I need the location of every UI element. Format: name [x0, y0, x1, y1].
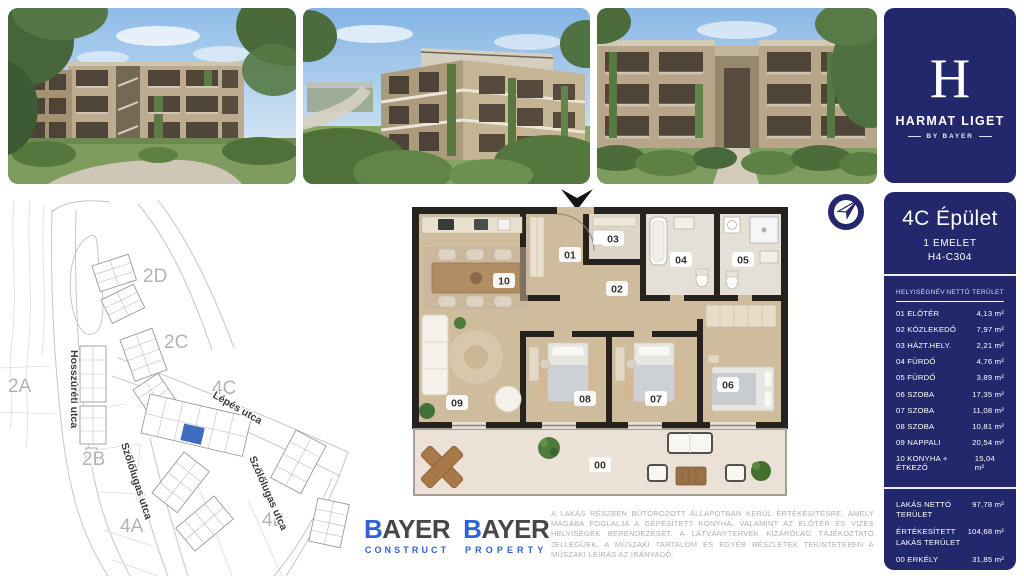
map-building-4a: [152, 452, 233, 551]
map-label-2c: 2C: [164, 332, 188, 353]
table-row: 04 FÜRDŐ4,76 m²: [896, 357, 1004, 366]
render-garden-scene: [8, 8, 296, 184]
site-map: 2D 2C 2A 4C 2B 4A 4B Hosszúréti utca Lép…: [0, 200, 360, 576]
brand-card: H HARMAT LIGET BY BAYER: [884, 8, 1016, 183]
table-row: 02 KÖZLEKEDŐ7,97 m²: [896, 325, 1004, 334]
brand-name: HARMAT LIGET: [895, 114, 1004, 128]
table-row: 07 SZOBA11,08 m²: [896, 406, 1004, 415]
building-render-corner: [303, 8, 590, 184]
total-row: ÉRTÉKESÍTETT LAKÁS TERÜLET104,68 m²: [896, 527, 1004, 548]
render-front-scene: [597, 8, 877, 184]
building-title: 4C Épület: [888, 207, 1012, 231]
room-label-08: 08: [579, 394, 591, 406]
room-label-00: 00: [594, 460, 606, 472]
map-street-szololugas-1: Szőlőlugas utca: [118, 441, 154, 521]
table-row: 01 ELŐTÉR4,13 m²: [896, 309, 1004, 318]
room-label-01: 01: [564, 250, 576, 262]
totals-section: LAKÁS NETTÓ TERÜLET97,78 m² ÉRTÉKESÍTETT…: [884, 500, 1016, 565]
total-row: 00 ERKÉLY31,85 m²: [896, 555, 1004, 565]
unit-code: H4-C304: [888, 252, 1012, 263]
separator: [884, 487, 1016, 489]
map-label-2a: 2A: [8, 376, 32, 397]
render-corner-scene: [303, 8, 590, 184]
map-label-2b: 2B: [82, 449, 105, 470]
unit-info-card: 4C Épület 1 EMELET H4-C304 HELYISÉGNÉV N…: [884, 192, 1016, 570]
byline-dash-right: [979, 136, 992, 137]
byline-dash-left: [908, 136, 921, 137]
footer-logos: BAYER CONSTRUCT BAYER PROPERTY: [364, 516, 549, 555]
table-row: 08 SZOBA10,81 m²: [896, 422, 1004, 431]
table-row: 05 FÜRDŐ3,89 m²: [896, 373, 1004, 382]
total-row: LAKÁS NETTÓ TERÜLET97,78 m²: [896, 500, 1004, 521]
brand-byline: BY BAYER: [908, 133, 991, 140]
table-row: 10 KONYHA + ÉTKEZŐ15,04 m²: [896, 454, 1004, 472]
floor-label: 1 EMELET: [888, 238, 1012, 249]
table-header: HELYISÉGNÉV NETTÓ TERÜLET: [896, 289, 1004, 302]
separator: [884, 274, 1016, 276]
room-area-table: HELYISÉGNÉV NETTÓ TERÜLET 01 ELŐTÉR4,13 …: [884, 289, 1016, 472]
room-label-02: 02: [611, 284, 623, 296]
room-label-03: 03: [607, 234, 619, 246]
disclaimer-text: A LAKÁS RÉSZBEN BÚTOROZOTT ÁLLAPOTBAN KE…: [551, 509, 874, 560]
room-label-09: 09: [451, 398, 463, 410]
room-label-07: 07: [650, 394, 662, 406]
bayer-property-logo: BAYER PROPERTY: [463, 516, 549, 555]
unit-card-header: 4C Épület 1 EMELET H4-C304: [884, 192, 1016, 274]
room-label-06: 06: [722, 380, 734, 392]
building-render-garden: [8, 8, 296, 184]
table-row: 03 HÁZT.HELY.2,21 m²: [896, 341, 1004, 350]
compass-icon: [824, 190, 868, 234]
brand-monogram: H: [930, 51, 970, 107]
room-label-05: 05: [737, 255, 749, 267]
map-label-2d: 2D: [143, 266, 167, 287]
room-label-10: 10: [498, 276, 510, 288]
room-label-04: 04: [675, 255, 687, 267]
map-building-2d: [92, 254, 145, 323]
table-row: 06 SZOBA17,35 m²: [896, 390, 1004, 399]
floor-plan: 10 01 03 04 05 02 09 08 07 06 00: [412, 207, 788, 500]
map-label-4a: 4A: [120, 516, 144, 537]
table-row: 09 NAPPALI20,54 m²: [896, 438, 1004, 447]
bayer-construct-logo: BAYER CONSTRUCT: [364, 516, 450, 555]
map-street-hosszureti: Hosszúréti utca: [68, 350, 80, 428]
building-render-front: [597, 8, 877, 184]
